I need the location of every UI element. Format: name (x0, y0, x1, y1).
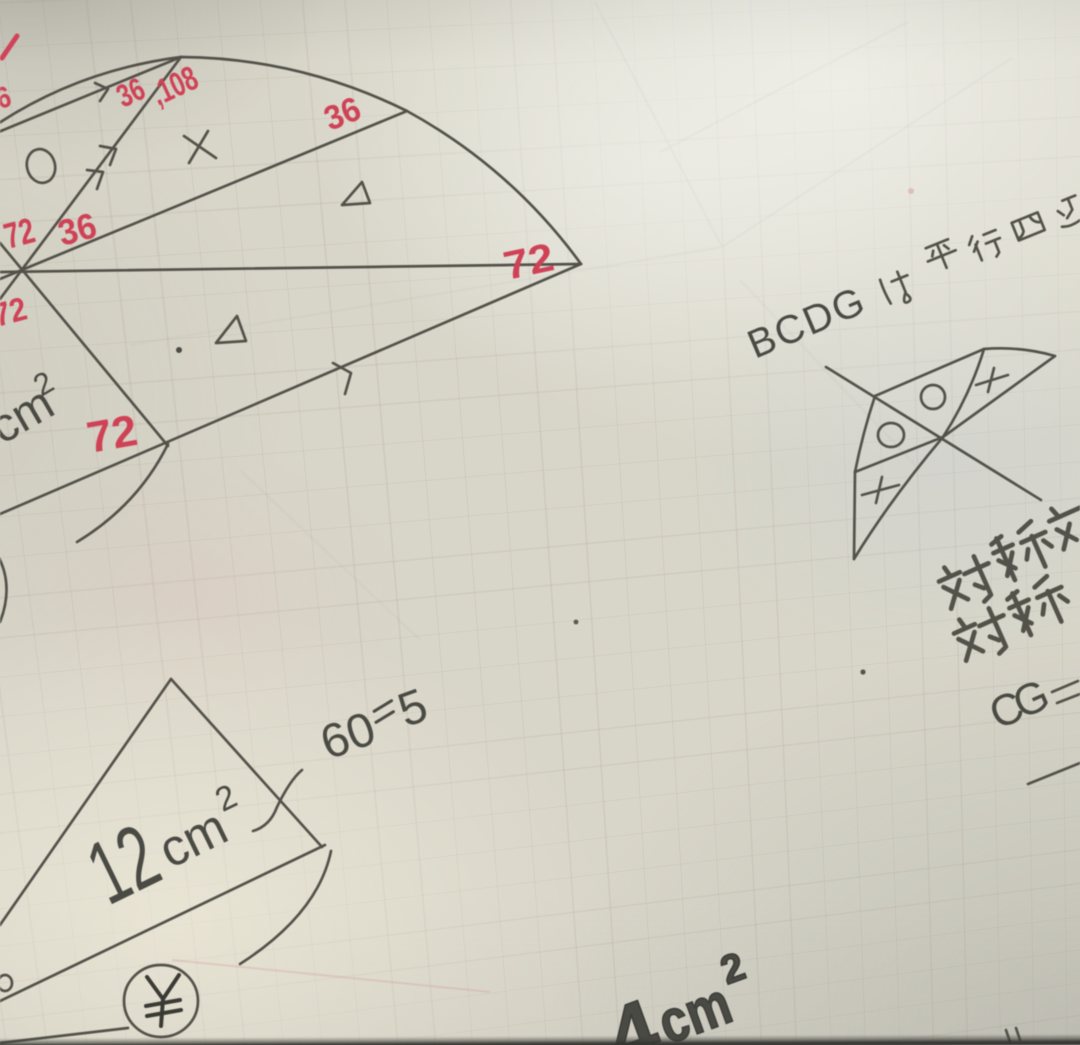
svg-text:72: 72 (83, 406, 141, 463)
svg-text:72: 72 (0, 289, 31, 333)
svg-text:72: 72 (500, 235, 558, 288)
svg-text:60: 60 (314, 702, 383, 770)
svg-text:CG: CG (982, 670, 1057, 739)
svg-text:36: 36 (53, 204, 100, 253)
svg-text:5: 5 (391, 679, 434, 738)
svg-text:BCDG: BCDG (741, 279, 870, 367)
